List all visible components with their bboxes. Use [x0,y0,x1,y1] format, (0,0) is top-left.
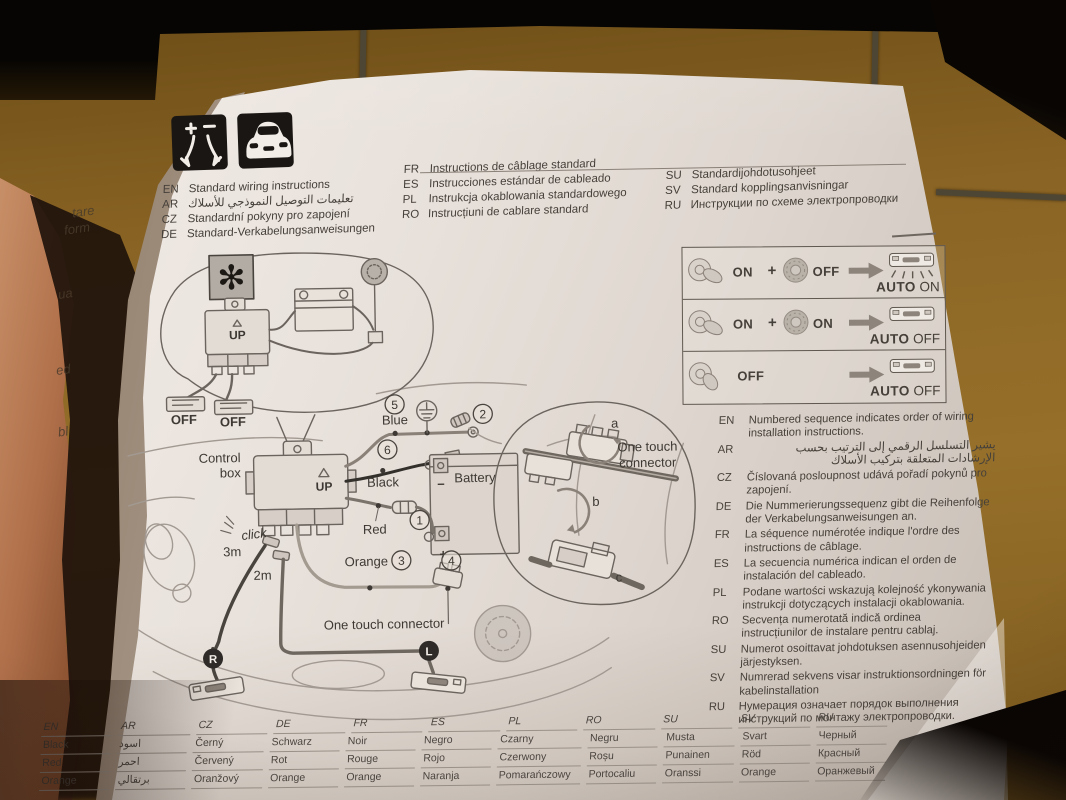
svg-text:6: 6 [384,443,391,457]
color-table-cell: Red [40,754,111,773]
step-c-label: c [616,569,623,584]
sequence-notes: ENNumbered sequence indicates order of w… [708,410,1011,730]
one-touch-label-main: One touch connector [324,616,446,633]
sequence-note: SUNumerot osoittavat johdotuksen asennus… [710,639,1003,671]
lang-code: ES [403,177,430,193]
fog-switch-icon [782,308,810,336]
auto-row-3: OFF AUTO OFF [683,350,945,403]
fog-switch-icon [782,256,810,284]
auto-row-1: ON + OFF AUTO ON [682,246,944,300]
circled-3: 3 [392,551,411,570]
title-languages-group1: ENStandard wiring instructions ARتعليمات… [161,176,377,243]
color-table-cell: Negru [588,729,659,748]
auto-state: OFF [913,331,940,346]
battery-label: Battery [454,470,496,486]
auto-word: AUTO [876,279,916,294]
sheet-content: ENStandard wiring instructions ARتعليمات… [0,0,1066,800]
lang-code: RO [711,615,742,642]
arrow-icon [849,262,885,280]
color-table-header: RU [816,709,888,728]
lang-code: EN [162,182,189,198]
circled-1: 1 [410,510,429,529]
lang-code: RU [664,198,691,214]
lang-code: DE [715,500,746,527]
circled-6: 6 [378,440,397,459]
control-box-label: Control [198,450,240,466]
battery-jumper-icon [171,114,228,171]
color-table-cell: Orange [39,772,110,791]
arrow-icon [849,314,885,332]
color-table-cell: Черный [816,727,887,746]
color-table-header: CZ [196,716,268,735]
svg-text:2: 2 [479,407,486,421]
circled-4: 4 [442,551,461,570]
lang-code: AR [162,197,189,213]
note-text: يشير التسلسل الرقمي إلى الترتيب بحسب الإ… [747,439,996,470]
inset-off-right-label: OFF [220,414,246,429]
color-table-header: SU [661,711,733,730]
sequence-note: ESLa secuencia numérica indican el orden… [713,553,1006,585]
svg-text:4: 4 [448,554,455,568]
color-table-header: ES [429,713,501,732]
one-touch-inset-label-1: One touch [617,438,677,454]
note-text: Secvența numerotată indică ordinea instr… [741,610,990,641]
small-rule [892,232,936,237]
key-state-label: ON [733,264,753,279]
control-box: UP [245,440,357,536]
plus-sign: + [768,262,777,279]
color-table-header: EN [41,718,113,737]
lang-code: PL [712,586,743,613]
sequence-note: FRLa séquence numérotée indique l'ordre … [714,524,1007,556]
note-text: La séquence numérotée indique l'ordre de… [744,525,993,556]
color-table-cell: Rojo [421,750,492,769]
battery-minus: − [437,477,445,492]
note-text: Numerot osoittavat johdotuksen asennusoh… [740,639,989,670]
badge-r-label: R [209,654,218,666]
auto-word: AUTO [870,383,910,398]
inset-control-box: UP [205,298,270,375]
auto-result: AUTO OFF [870,383,940,398]
key-state-label: ON [733,316,753,331]
color-table-cell: برتقالي [115,771,186,790]
ground-symbol [417,401,438,433]
header-pictograms [171,112,294,171]
black-label: Black [367,474,400,490]
inset-off-left-label: OFF [171,412,197,427]
switch-state-label: ON [813,316,833,331]
sequence-note: DEDie Nummerierungssequenz gibt die Reih… [715,496,1008,528]
color-table-cell: Czerwony [497,748,581,767]
lang-code: SU [710,643,741,670]
auto-word: AUTO [870,331,910,346]
color-table-cell: Noir [345,732,416,751]
color-table-cell: Красный [816,745,887,764]
note-text: Číslovaná posloupnost udává pořadí pokyn… [746,467,995,498]
color-translation-table: ENARCZDEFRESPLROSUSVRU BlackاسودČernýSch… [39,709,894,791]
inset-battery [295,288,354,331]
note-text: Numbered sequence indicates order of wir… [748,410,997,441]
color-table-cell: Pomarańczowy [496,766,580,785]
color-table-header: FR [351,714,423,733]
color-table-cell: Oranssi [662,765,733,784]
svg-text:✻: ✻ [217,259,246,297]
note-text: Numrerad sekvens visar instruktionsordni… [739,668,988,699]
fog-lamp-off-icon [888,302,938,334]
step-a-label: a [611,415,619,430]
circled-2: 2 [473,404,492,423]
svg-text:box: box [220,465,242,480]
lang-code: CZ [716,472,747,499]
fog-lamp-on-icon [887,250,937,282]
fog-lamp-right [411,672,466,694]
lang-code: CZ [161,212,188,228]
length-2m-label: 2m [253,568,271,583]
arrow-icon [849,366,885,384]
color-table-header: SV [738,710,810,729]
sequence-note: SVNumrerad sekvens visar instruktionsord… [709,667,1002,699]
battery [430,453,520,555]
switch-state-label: OFF [813,264,840,279]
length-3m-label: 3m [223,544,241,559]
color-table-cell: Orange [739,764,810,783]
color-table-cell: Czarny [498,730,582,749]
lang-code: SU [665,168,692,184]
wiring-diagram: ✻ UP [124,238,712,728]
note-text: Podane wartości wskazują kolejność ykony… [742,582,991,613]
snowflake-icon: ✻ [209,255,254,300]
title-languages-group3: SUStandardijohdotusohjeet SVStandard kop… [664,162,899,214]
red-label: Red [363,522,387,537]
color-table-cell: Červený [192,752,263,771]
color-table-cell: Rot [268,751,339,770]
lang-code: AR [717,443,748,470]
sequence-note: PLPodane wartości wskazują kolejność yko… [712,582,1005,614]
color-table-cell: Negro [422,731,493,750]
orange-label: Orange [345,554,389,570]
lang-code: FR [403,162,430,178]
auto-state: OFF [913,383,940,398]
lang-code: SV [665,183,692,199]
step-b-label: b [592,494,599,509]
color-table-header: AR [119,717,191,736]
inset-fog-lamp [361,259,388,343]
plus-sign: + [768,314,777,331]
color-table-cell: Musta [664,729,735,748]
color-table-cell: Punainen [663,747,734,766]
title-languages-group2: FRInstructions de câblage standard ESIns… [402,156,628,223]
color-table-body: BlackاسودČernýSchwarzNoirNegroCzarnyNegr… [39,727,893,791]
sequence-note: CZČíslovaná posloupnost udává pořadí pok… [716,467,1009,499]
lang-code: ES [713,558,744,585]
lang-code: SV [709,672,740,699]
auto-result: AUTO OFF [870,331,940,346]
lang-code: PL [402,192,429,208]
red-wire [346,497,390,508]
svg-text:5: 5 [391,398,398,412]
badge-l-label: L [425,646,432,658]
sequence-note: ENNumbered sequence indicates order of w… [718,410,1011,442]
circled-5: 5 [385,395,404,414]
color-table-cell: Portocaliu [586,765,657,784]
lang-code: RO [402,207,429,223]
inset-up-label: UP [229,328,246,342]
one-touch-inset-label-2: connector [619,454,677,470]
color-table-cell: Naranja [420,768,491,787]
color-table-cell: Rouge [345,750,416,769]
lang-code: FR [714,529,745,556]
up-label: UP [316,479,333,493]
color-table-header: DE [274,715,346,734]
color-table-cell: Orange [344,768,415,787]
key-state-label: OFF [737,368,764,383]
color-table-cell: Oranžový [192,770,263,789]
lang-code: EN [718,414,749,441]
color-table-header: RO [583,712,655,731]
note-text: La secuencia numérica indican el orden d… [743,553,992,584]
color-table-cell: Černý [193,734,264,753]
color-table-cell: اسود [117,735,188,754]
bolt-icon [450,412,471,429]
color-table-cell: Roșu [587,747,658,766]
photo-scene: tare form ua ed bl [0,0,1066,800]
fog-lamp-left [189,676,245,700]
color-table-cell: Orange [268,769,339,788]
note-text: Die Nummerierungssequenz gibt die Reihen… [745,496,994,527]
auto-result: AUTO ON [876,279,940,294]
svg-text:1: 1 [416,513,423,527]
svg-text:3: 3 [398,554,405,568]
color-table-cell: Röd [739,746,810,765]
color-table-cell: Svart [740,728,811,747]
color-table-cell: احمر [116,753,187,772]
color-table-header: PL [506,712,578,731]
sequence-note: ARيشير التسلسل الرقمي إلى الترتيب بحسب ا… [717,439,1010,471]
color-table-cell: Schwarz [269,733,340,752]
auto-row-2: ON + ON AUTO OFF [683,298,945,352]
auto-logic-box: ON + OFF AUTO ON ON + ON AUTO OFF OF [681,245,946,405]
color-table-cell: Black [41,736,112,755]
auto-state: ON [919,279,939,294]
color-table-cell: Оранжевый [815,763,886,782]
lang-code: DE [161,227,188,243]
fog-lamp-off-icon [888,354,938,386]
sequence-note: ROSecvența numerotată indică ordinea ins… [711,610,1004,642]
car-icon [237,112,294,169]
